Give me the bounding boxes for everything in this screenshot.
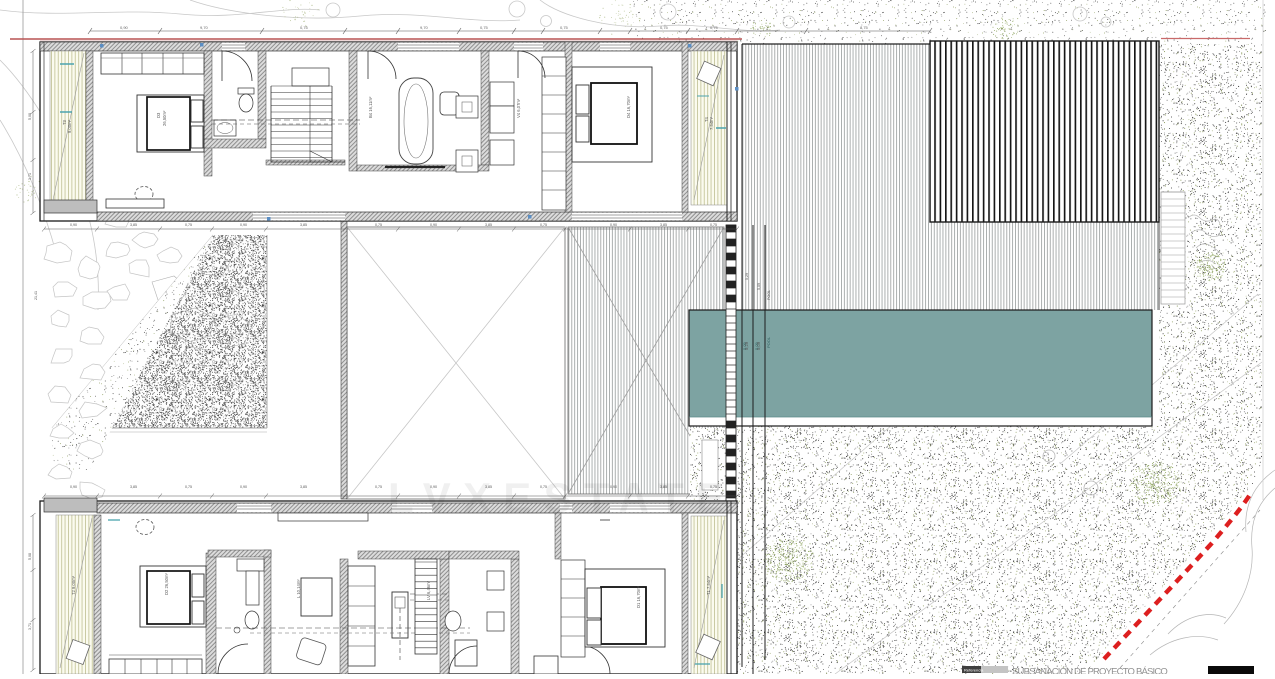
svg-text:0,75: 0,75 bbox=[560, 25, 569, 30]
svg-text:V4 6,07m²: V4 6,07m² bbox=[516, 98, 521, 118]
svg-text:0,75: 0,75 bbox=[540, 223, 547, 227]
svg-text:D2 26,50m²: D2 26,50m² bbox=[164, 573, 169, 595]
svg-text:0,90: 0,90 bbox=[70, 485, 77, 489]
svg-text:0,90: 0,90 bbox=[610, 223, 617, 227]
svg-text:0,75: 0,75 bbox=[375, 485, 382, 489]
svg-text:0,90: 0,90 bbox=[240, 485, 247, 489]
svg-text:9,00m²: 9,00m² bbox=[67, 119, 72, 133]
svg-text:D4 16,70m²: D4 16,70m² bbox=[626, 96, 631, 118]
svg-text:0,90: 0,90 bbox=[70, 223, 77, 227]
svg-text:0,75: 0,75 bbox=[710, 223, 717, 227]
svg-text:T2 9,00m²: T2 9,00m² bbox=[71, 575, 76, 595]
svg-text:SUBSANACIÓN DE PROYECTO BÁSICO: SUBSANACIÓN DE PROYECTO BÁSICO bbox=[1012, 667, 1168, 675]
svg-text:3,85: 3,85 bbox=[300, 223, 307, 227]
svg-text:POOL: POOL bbox=[767, 290, 771, 300]
svg-text:3,85: 3,85 bbox=[660, 223, 667, 227]
svg-text:5,08: 5,08 bbox=[28, 553, 32, 560]
svg-text:5,09: 5,09 bbox=[756, 341, 761, 350]
svg-text:D1 16,70m²: D1 16,70m² bbox=[636, 586, 641, 608]
svg-text:3,71: 3,71 bbox=[28, 623, 32, 630]
svg-text:3,85: 3,85 bbox=[300, 485, 307, 489]
svg-text:0,75: 0,75 bbox=[185, 223, 192, 227]
svg-text:21,41: 21,41 bbox=[34, 291, 38, 300]
svg-text:5,29: 5,29 bbox=[745, 273, 749, 280]
svg-text:5,29: 5,29 bbox=[744, 341, 749, 350]
svg-text:0,90: 0,90 bbox=[610, 485, 617, 489]
svg-text:0,75: 0,75 bbox=[710, 25, 719, 30]
svg-text:7,54m²: 7,54m² bbox=[709, 116, 714, 130]
svg-text:0,90: 0,90 bbox=[120, 25, 129, 30]
svg-text:0,75: 0,75 bbox=[185, 485, 192, 489]
svg-text:Referencia: Referencia bbox=[964, 668, 984, 673]
svg-text:0,75: 0,75 bbox=[300, 25, 309, 30]
svg-text:D3: D3 bbox=[156, 112, 161, 118]
svg-text:0,75: 0,75 bbox=[660, 25, 669, 30]
svg-text:0,90: 0,90 bbox=[240, 223, 247, 227]
svg-text:3,85: 3,85 bbox=[130, 223, 137, 227]
svg-text:B4 16,11m²: B4 16,11m² bbox=[368, 96, 373, 118]
svg-text:9,70: 9,70 bbox=[420, 25, 429, 30]
svg-text:26,50m²: 26,50m² bbox=[162, 110, 167, 126]
svg-text:0,75: 0,75 bbox=[375, 223, 382, 227]
svg-text:LVXESTATE: LVXESTATE bbox=[388, 474, 724, 521]
svg-text:9,70: 9,70 bbox=[200, 25, 209, 30]
svg-text:0,75: 0,75 bbox=[480, 25, 489, 30]
svg-text:0,90: 0,90 bbox=[430, 223, 437, 227]
svg-text:5,09: 5,09 bbox=[757, 283, 761, 290]
svg-text:L 10,14m²: L 10,14m² bbox=[296, 579, 301, 598]
svg-text:8,75: 8,75 bbox=[860, 25, 869, 30]
svg-text:3,85: 3,85 bbox=[130, 485, 137, 489]
svg-text:3,71: 3,71 bbox=[28, 173, 32, 180]
svg-text:3,85: 3,85 bbox=[485, 223, 492, 227]
svg-text:T1 7,54m²: T1 7,54m² bbox=[706, 575, 711, 595]
svg-text:5,08: 5,08 bbox=[28, 113, 32, 120]
svg-text:POOL: POOL bbox=[766, 336, 771, 348]
svg-text:LV 6,46m²: LV 6,46m² bbox=[426, 580, 431, 600]
